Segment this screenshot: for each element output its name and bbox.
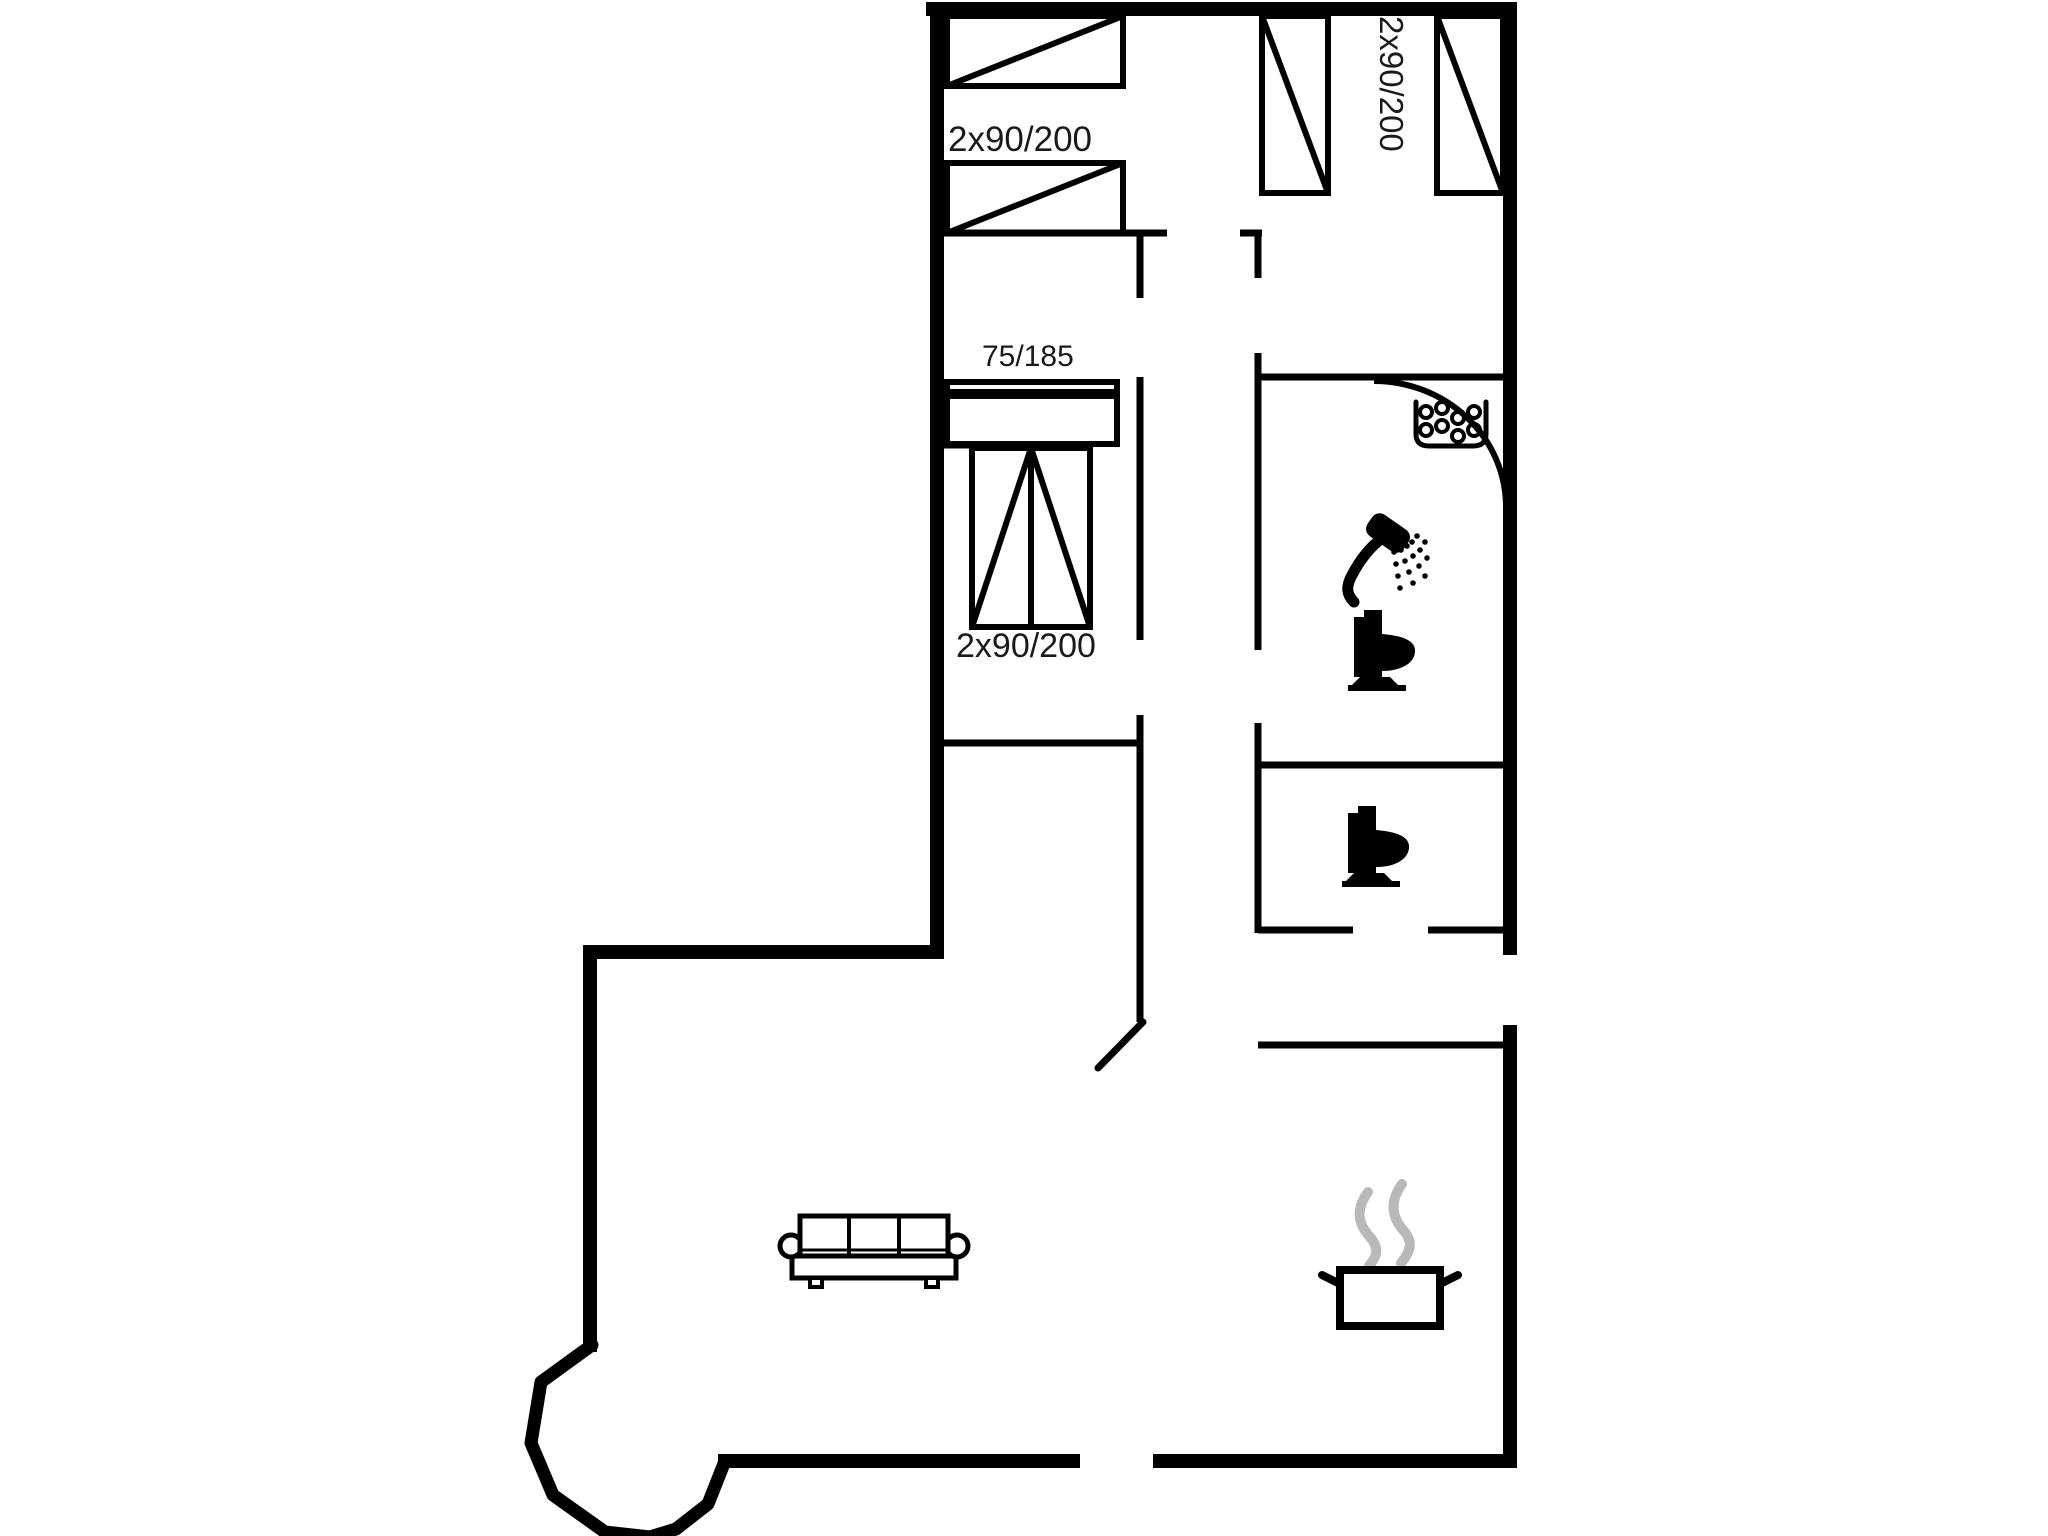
bed-75x185	[947, 382, 1117, 444]
bed-top-left-upper	[947, 16, 1123, 86]
bed-top-left-lower	[947, 163, 1123, 233]
bed-size-label-middle-bedroom: 2x90/200	[956, 627, 1096, 666]
bed-double-vertical	[972, 448, 1090, 627]
bed-top-right-left	[1262, 16, 1328, 193]
cooking-pot-icon	[1322, 1184, 1458, 1326]
doors	[1098, 381, 1506, 1068]
toilet-icon	[1342, 806, 1409, 887]
fixtures	[780, 402, 1486, 1326]
sofa-icon	[780, 1216, 968, 1287]
toilet-icon	[1348, 610, 1415, 691]
washbasin-icon	[1416, 402, 1486, 446]
bed-size-label-top-left-bedroom: 2x90/200	[948, 120, 1092, 160]
bed-top-right-right	[1437, 16, 1503, 193]
bay-corner-wall	[531, 1345, 725, 1536]
shower-icon	[1348, 510, 1430, 602]
floor-plan-canvas: 2x90/200 2x90/200 75/185 2x90/200	[0, 0, 2048, 1536]
floor-plan-drawing	[0, 0, 2048, 1536]
living-room-door-leaf	[1098, 1022, 1143, 1068]
bed-size-label-75-185: 75/185	[982, 340, 1074, 374]
bed-size-label-top-right-bedroom: 2x90/200	[1372, 16, 1410, 176]
